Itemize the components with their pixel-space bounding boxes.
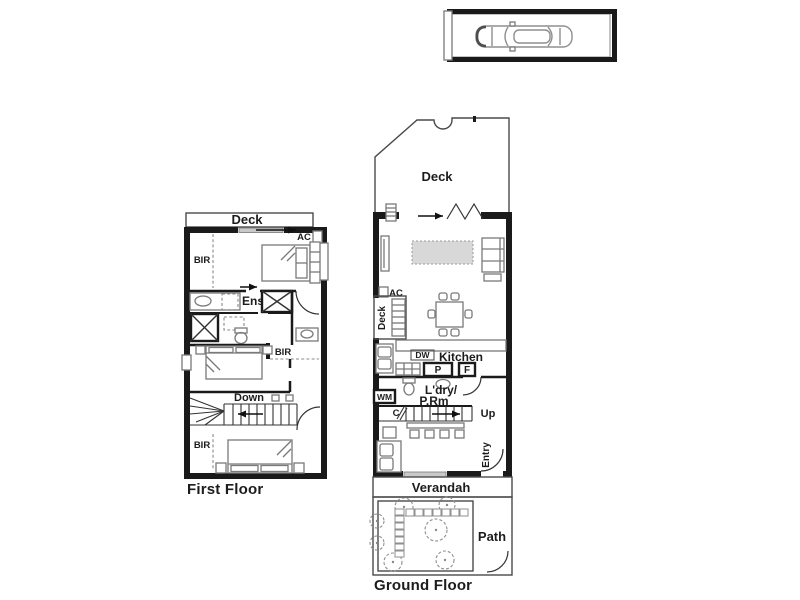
gf-chair (465, 310, 472, 318)
ff-bedside-table (263, 346, 272, 354)
gf-bifold-doors (447, 204, 483, 219)
ff-shower-2 (191, 314, 218, 341)
car (476, 22, 572, 51)
ff-window-left (182, 355, 191, 370)
first-floor-plan: Deck BIR AC (182, 212, 328, 498)
gf-chair (428, 310, 435, 318)
ff-ac-label: AC (297, 232, 311, 243)
gf-rug (412, 241, 473, 264)
gf-deck-label: Deck (421, 169, 453, 184)
ff-title: First Floor (187, 481, 263, 498)
ff-bedroom-3: BIR (194, 434, 304, 473)
gf-stairs-up: C Up (373, 406, 496, 421)
ff-bedside-table (294, 463, 304, 473)
floorplan-page: Deck BIR AC (0, 0, 800, 600)
gf-verandah: Verandah (373, 477, 512, 497)
ff-ens-vanity (190, 293, 240, 310)
gf-deck-step (386, 204, 396, 221)
ff-bed-1 (262, 242, 320, 283)
car-mirror-icon (510, 22, 515, 26)
ff-bedside-table (196, 346, 205, 354)
gf-chair (451, 293, 459, 300)
gf-small-table (383, 427, 396, 438)
ff-bir-mid-label: BIR (275, 347, 292, 358)
gf-chair (451, 329, 459, 336)
gf-garden: Path (370, 497, 512, 575)
ff-bedroom1-door (296, 291, 319, 314)
gf-title: Ground Floor (374, 577, 472, 594)
ground-floor-plan: Deck (370, 116, 512, 594)
gf-pantry-label: P (435, 365, 442, 376)
ff-toilet (235, 333, 247, 344)
gf-kitchen: DW Kitchen P F (376, 340, 506, 376)
gf-laundry-door (463, 377, 481, 395)
gf-gate (487, 551, 508, 572)
gf-cooktop (396, 363, 420, 375)
ff-down-label: Down (234, 392, 264, 404)
gf-cupboard-label: C (393, 408, 400, 419)
gf-fridge-label: F (464, 365, 470, 376)
gf-lounge-sofa (377, 441, 401, 472)
gf-trees (370, 497, 455, 571)
ff-ac-unit (313, 231, 322, 243)
gf-ac-label: AC (389, 288, 403, 299)
gf-pavers (395, 509, 468, 557)
gf-entry-label: Entry (481, 442, 492, 468)
gf-dw-label: DW (415, 350, 430, 360)
gf-dining-table (436, 302, 463, 327)
gf-path-label: Path (478, 529, 506, 544)
gf-side-deck: Deck (374, 296, 406, 339)
gf-side-deck-label: Deck (377, 306, 388, 330)
gf-toilet-cistern (403, 378, 415, 383)
gf-toilet (404, 383, 414, 395)
gf-tv-unit (381, 236, 389, 271)
ff-bathroom (191, 314, 318, 344)
floorplan-image: Deck BIR AC (0, 0, 800, 600)
ff-bedroom-1: BIR AC (194, 231, 322, 288)
ff-bedside-table (216, 463, 226, 473)
ff-shower-1 (262, 291, 292, 312)
gf-deck (375, 118, 509, 212)
gf-bench (407, 423, 464, 438)
ff-bir-bottom-label: BIR (194, 440, 211, 451)
gf-side-table (484, 274, 501, 281)
gf-stool (425, 430, 434, 438)
ff-bir-top-label: BIR (194, 255, 211, 266)
ff-bed-3 (228, 440, 292, 473)
gf-laundry: WM L'dry/ P.Rm (373, 377, 506, 408)
garage-door-panel (444, 11, 452, 60)
ff-stairs-down: Down (190, 392, 320, 430)
gf-sink-unit (376, 344, 393, 373)
ff-bedroom-2: BIR (190, 343, 319, 392)
gf-chair (439, 329, 447, 336)
ff-bedroom3-door (297, 407, 320, 430)
car-mirror-icon (510, 47, 515, 51)
ff-deck-label: Deck (231, 212, 263, 227)
ff-bed-2 (206, 346, 262, 379)
gf-living-room: AC (379, 236, 504, 299)
gf-verandah-label: Verandah (412, 480, 471, 495)
gf-stool (455, 430, 464, 438)
gf-wm-label: WM (377, 392, 392, 402)
gf-stool (410, 430, 419, 438)
gf-chair (439, 293, 447, 300)
gf-up-label: Up (481, 408, 496, 420)
gf-sliding-door (404, 472, 446, 477)
garage (444, 9, 617, 62)
gf-dining (428, 293, 472, 336)
gf-stool (440, 430, 449, 438)
gf-sofa (482, 238, 504, 272)
